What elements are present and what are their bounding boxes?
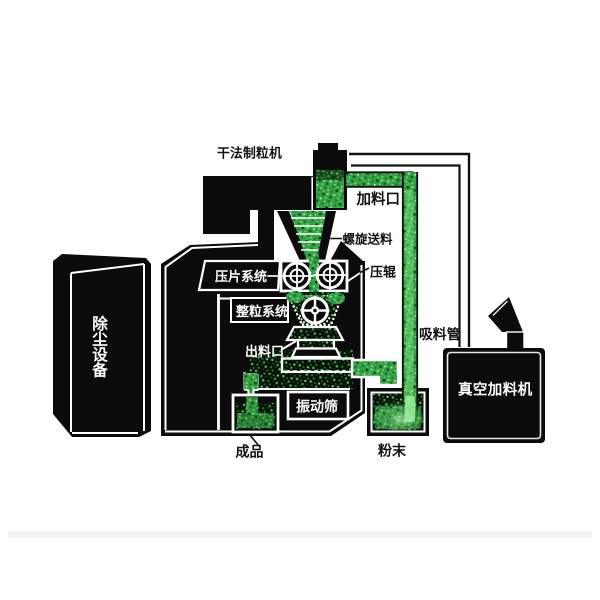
svg-text:振动筛: 振动筛	[296, 399, 338, 415]
svg-text:一螺旋送料: 一螺旋送料	[330, 232, 393, 247]
svg-text:整粒系统: 整粒系统	[235, 304, 288, 319]
svg-text:粉末: 粉末	[378, 443, 407, 459]
svg-text:压片系统一: 压片系统一	[215, 269, 280, 284]
svg-text:出料口: 出料口	[245, 344, 284, 359]
svg-text:备: 备	[91, 361, 108, 380]
svg-text:加料口: 加料口	[356, 190, 401, 208]
svg-text:除: 除	[92, 314, 108, 333]
svg-text:真空加料机: 真空加料机	[458, 381, 533, 399]
svg-text:吸料管: 吸料管	[419, 326, 461, 342]
svg-text:设: 设	[92, 346, 108, 364]
svg-text:干法制粒机: 干法制粒机	[217, 146, 282, 161]
svg-text:成品: 成品	[236, 444, 264, 460]
svg-text:尘: 尘	[92, 331, 108, 349]
svg-text:压辊: 压辊	[370, 265, 396, 280]
